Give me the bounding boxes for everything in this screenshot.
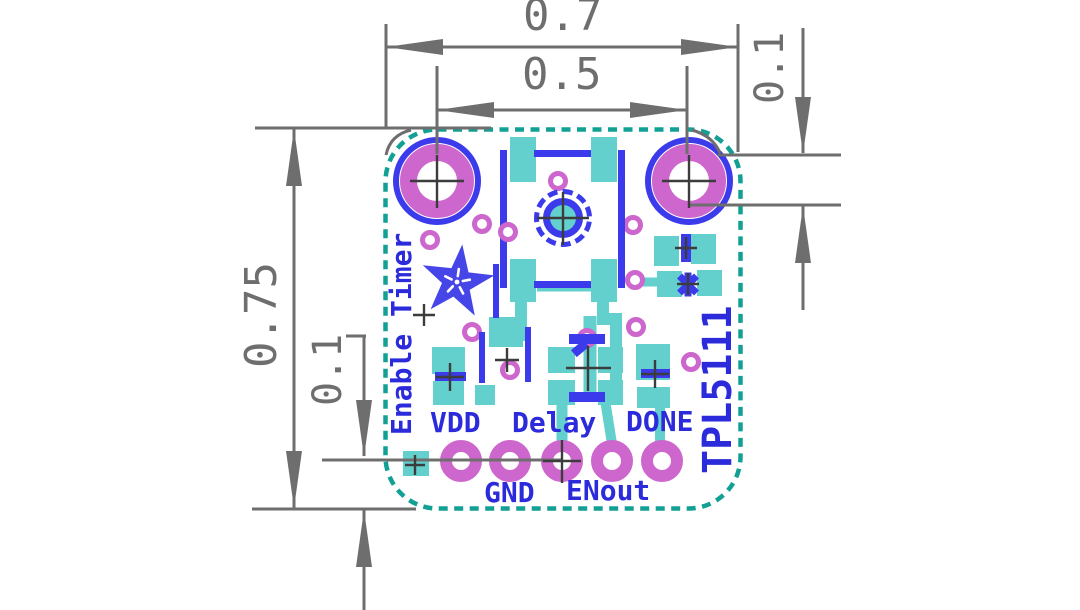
dimension-layer bbox=[0, 0, 1080, 610]
pcb-fab-drawing: Enable Timer TPL5111 VDD Delay DONE GND … bbox=[0, 0, 1080, 610]
crosshair-marks bbox=[405, 155, 716, 483]
